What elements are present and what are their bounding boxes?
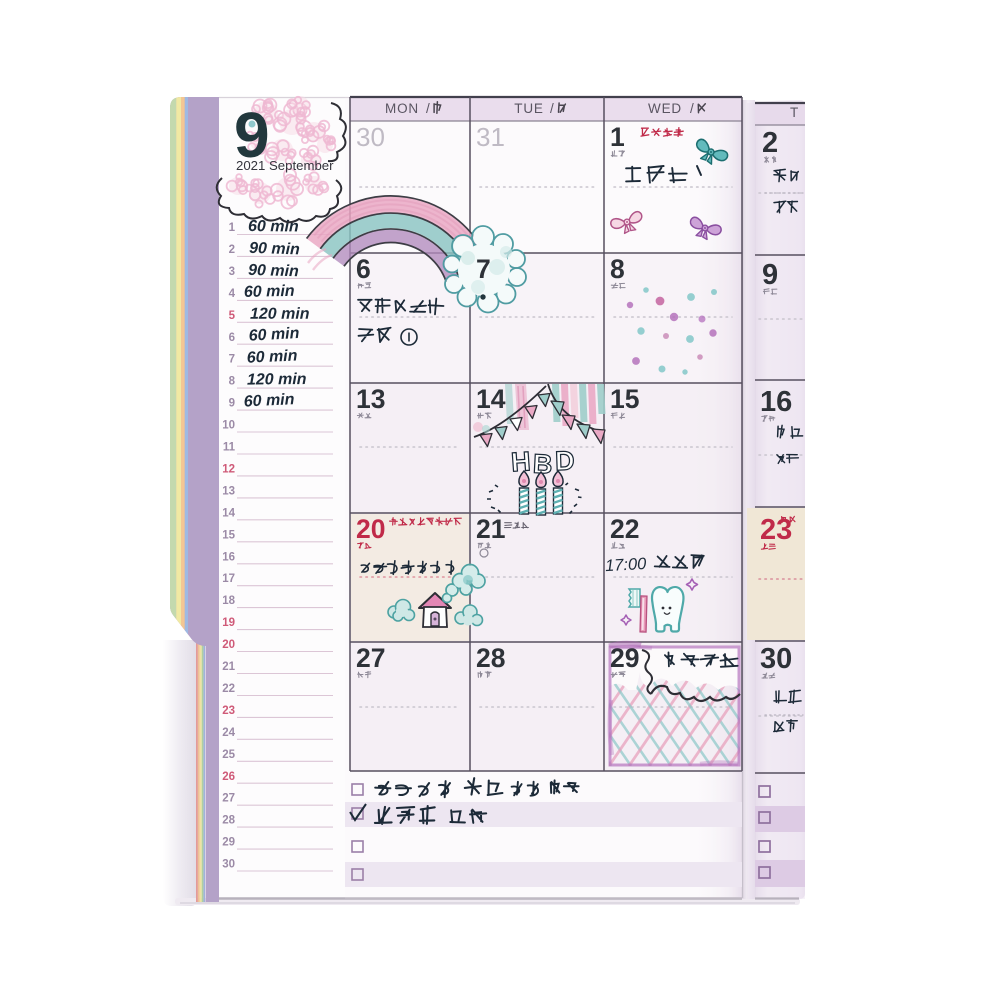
svg-text:6: 6 [356, 254, 371, 284]
svg-text:TUE: TUE [514, 101, 543, 116]
svg-text:14: 14 [476, 384, 506, 414]
svg-text:13: 13 [356, 384, 385, 414]
svg-text:27: 27 [222, 793, 235, 805]
svg-text:60 min: 60 min [246, 347, 298, 366]
svg-text:22: 22 [610, 514, 639, 544]
svg-text:60 min: 60 min [248, 218, 299, 235]
svg-text:60 min: 60 min [243, 391, 295, 410]
svg-text:4: 4 [229, 288, 236, 300]
svg-text:90 min: 90 min [248, 262, 299, 280]
svg-text:T: T [790, 105, 798, 120]
svg-text:H: H [510, 446, 532, 477]
svg-text:21: 21 [476, 514, 505, 544]
svg-text:16: 16 [222, 551, 235, 563]
svg-text:23: 23 [222, 705, 235, 717]
svg-text:20: 20 [356, 514, 385, 544]
svg-text:17:00: 17:00 [605, 555, 648, 575]
svg-text:29: 29 [222, 837, 235, 849]
svg-text:21: 21 [222, 661, 235, 673]
svg-text:11: 11 [223, 442, 236, 454]
svg-text:23: 23 [760, 514, 792, 546]
svg-text:22: 22 [222, 683, 235, 695]
svg-text:120 min: 120 min [250, 306, 310, 323]
svg-text:/: / [690, 101, 694, 116]
svg-text:3: 3 [229, 266, 235, 278]
svg-text:60 min: 60 min [244, 283, 295, 301]
svg-text:2: 2 [762, 127, 778, 159]
svg-text:8: 8 [229, 376, 236, 388]
svg-text:10: 10 [222, 420, 235, 432]
svg-text:12: 12 [222, 463, 235, 475]
svg-text:13: 13 [222, 485, 235, 497]
svg-text:30: 30 [760, 643, 792, 675]
svg-text:24: 24 [222, 727, 235, 739]
svg-text:2021 September: 2021 September [236, 158, 334, 173]
svg-text:16: 16 [760, 386, 792, 418]
svg-text:30: 30 [356, 122, 385, 152]
svg-text:30: 30 [222, 859, 235, 871]
svg-text:26: 26 [222, 771, 235, 783]
svg-text:7: 7 [476, 254, 491, 284]
svg-text:31: 31 [476, 122, 505, 152]
svg-text:9: 9 [762, 259, 778, 291]
svg-text:9: 9 [229, 398, 235, 410]
svg-text:60 min: 60 min [248, 325, 300, 345]
svg-text:14: 14 [222, 507, 235, 519]
svg-text:WED: WED [648, 101, 682, 116]
svg-text:25: 25 [222, 749, 235, 761]
svg-text:5: 5 [229, 310, 236, 322]
svg-text:MON: MON [385, 101, 419, 116]
svg-text:1: 1 [610, 122, 625, 152]
svg-text:120 min: 120 min [247, 371, 307, 389]
svg-text:/: / [550, 101, 554, 116]
svg-text:28: 28 [476, 643, 505, 673]
svg-text:2: 2 [229, 244, 235, 256]
svg-text:1: 1 [229, 222, 236, 234]
svg-text:/: / [426, 101, 430, 116]
svg-text:15: 15 [610, 384, 639, 414]
svg-text:7: 7 [229, 354, 235, 366]
svg-text:6: 6 [229, 332, 235, 344]
svg-text:90 min: 90 min [249, 240, 300, 259]
svg-text:8: 8 [610, 254, 625, 284]
svg-text:28: 28 [222, 815, 235, 827]
svg-text:15: 15 [222, 529, 235, 541]
svg-text:17: 17 [222, 573, 235, 585]
svg-text:29: 29 [610, 643, 639, 673]
svg-text:27: 27 [356, 643, 385, 673]
svg-text:19: 19 [222, 617, 235, 629]
svg-text:20: 20 [222, 639, 235, 651]
svg-text:18: 18 [222, 595, 235, 607]
